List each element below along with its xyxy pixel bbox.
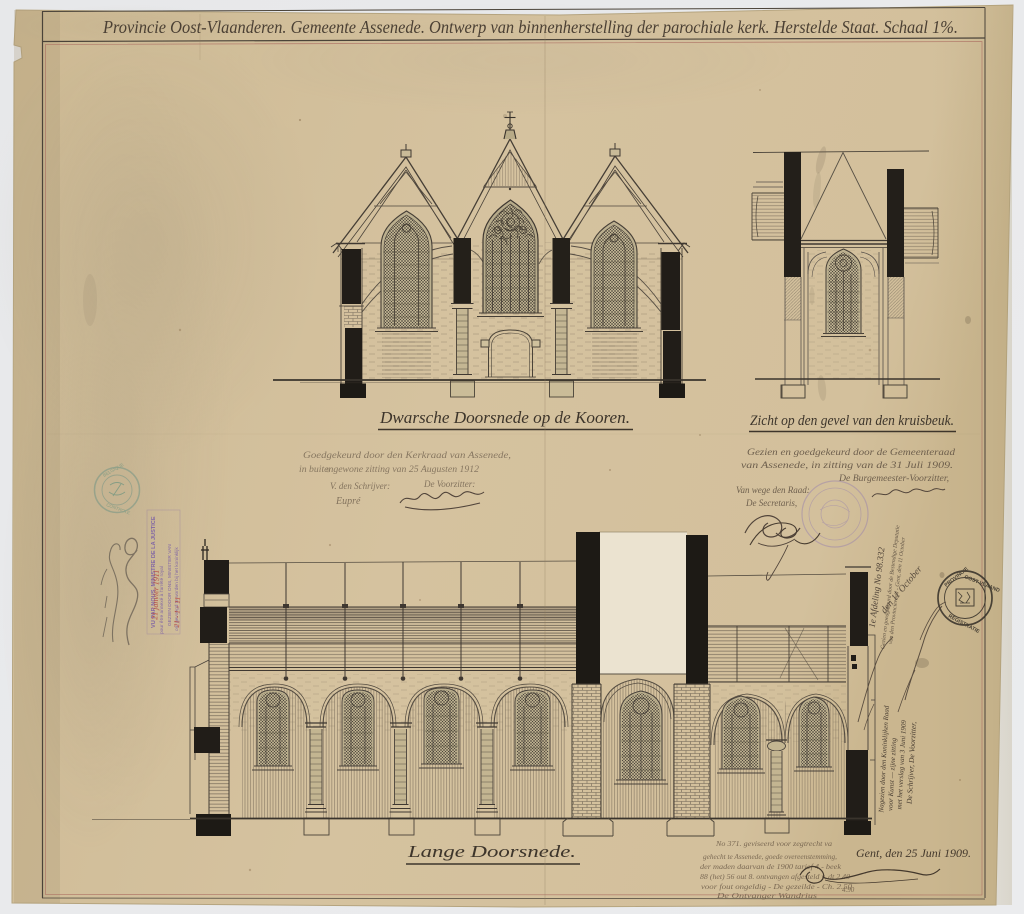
- svg-text:Eupré: Eupré: [335, 496, 361, 507]
- svg-text:88 (het) 56 out 8. ontvangen a: 88 (het) 56 out 8. ontvangen afgesteld v…: [700, 873, 851, 881]
- svg-text:Gezien en goedgekeurd door de: Gezien en goedgekeurd door de Gemeentera…: [747, 448, 955, 458]
- svg-text:Van wege den Raad:: Van wege den Raad:: [736, 485, 810, 495]
- svg-text:Gent, den 25 Juni 1909.: Gent, den 25 Juni 1909.: [856, 846, 971, 860]
- svg-text:Zicht op den gevel van den kru: Zicht op den gevel van den kruisbeuk.: [750, 413, 954, 429]
- svg-text:De Burgemeester-Voorzitter,: De Burgemeester-Voorzitter,: [838, 473, 949, 483]
- svg-text:gehecht te Assenede, goede ove: gehecht te Assenede, goede overeenstemmi…: [703, 853, 837, 861]
- svg-text:Lange Doorsnede.: Lange Doorsnede.: [407, 842, 576, 861]
- svg-text:No 371. geviseerd voor zegtrec: No 371. geviseerd voor zegtrecht va: [715, 840, 833, 848]
- svg-text:4.90: 4.90: [842, 886, 855, 894]
- svg-text:Goedgekeurd door den Kerkraad: Goedgekeurd door den Kerkraad van Assene…: [303, 450, 511, 460]
- svg-text:Provincie Oost-Vlaanderen. Gem: Provincie Oost-Vlaanderen. Gemeente Asse…: [102, 17, 958, 37]
- svg-text:van Assenede, in zitting van d: van Assenede, in zitting van de 31 Juli …: [741, 461, 953, 471]
- svg-text:21 - 1 - 11: 21 - 1 - 11: [172, 597, 182, 628]
- svg-text:De Secretaris,: De Secretaris,: [745, 498, 797, 508]
- svg-text:Dwarsche Doorsnede op de Koore: Dwarsche Doorsnede op de Kooren.: [379, 408, 630, 427]
- svg-text:De Voorzitter:: De Voorzitter:: [423, 479, 475, 489]
- svg-text:V. den Schrijver:: V. den Schrijver:: [330, 481, 390, 491]
- svg-text:21 janvier 1911: 21 janvier 1911: [150, 570, 161, 620]
- svg-text:voor fout ongeldig - De gezeil: voor fout ongeldig - De gezeilde - Ch. 2…: [701, 883, 853, 891]
- svg-text:De Ontvanger Wandrius: De Ontvanger Wandrius: [716, 892, 818, 900]
- svg-text:in buitengewone zitting van 25: in buitengewone zitting van 25 Augusten …: [299, 464, 480, 474]
